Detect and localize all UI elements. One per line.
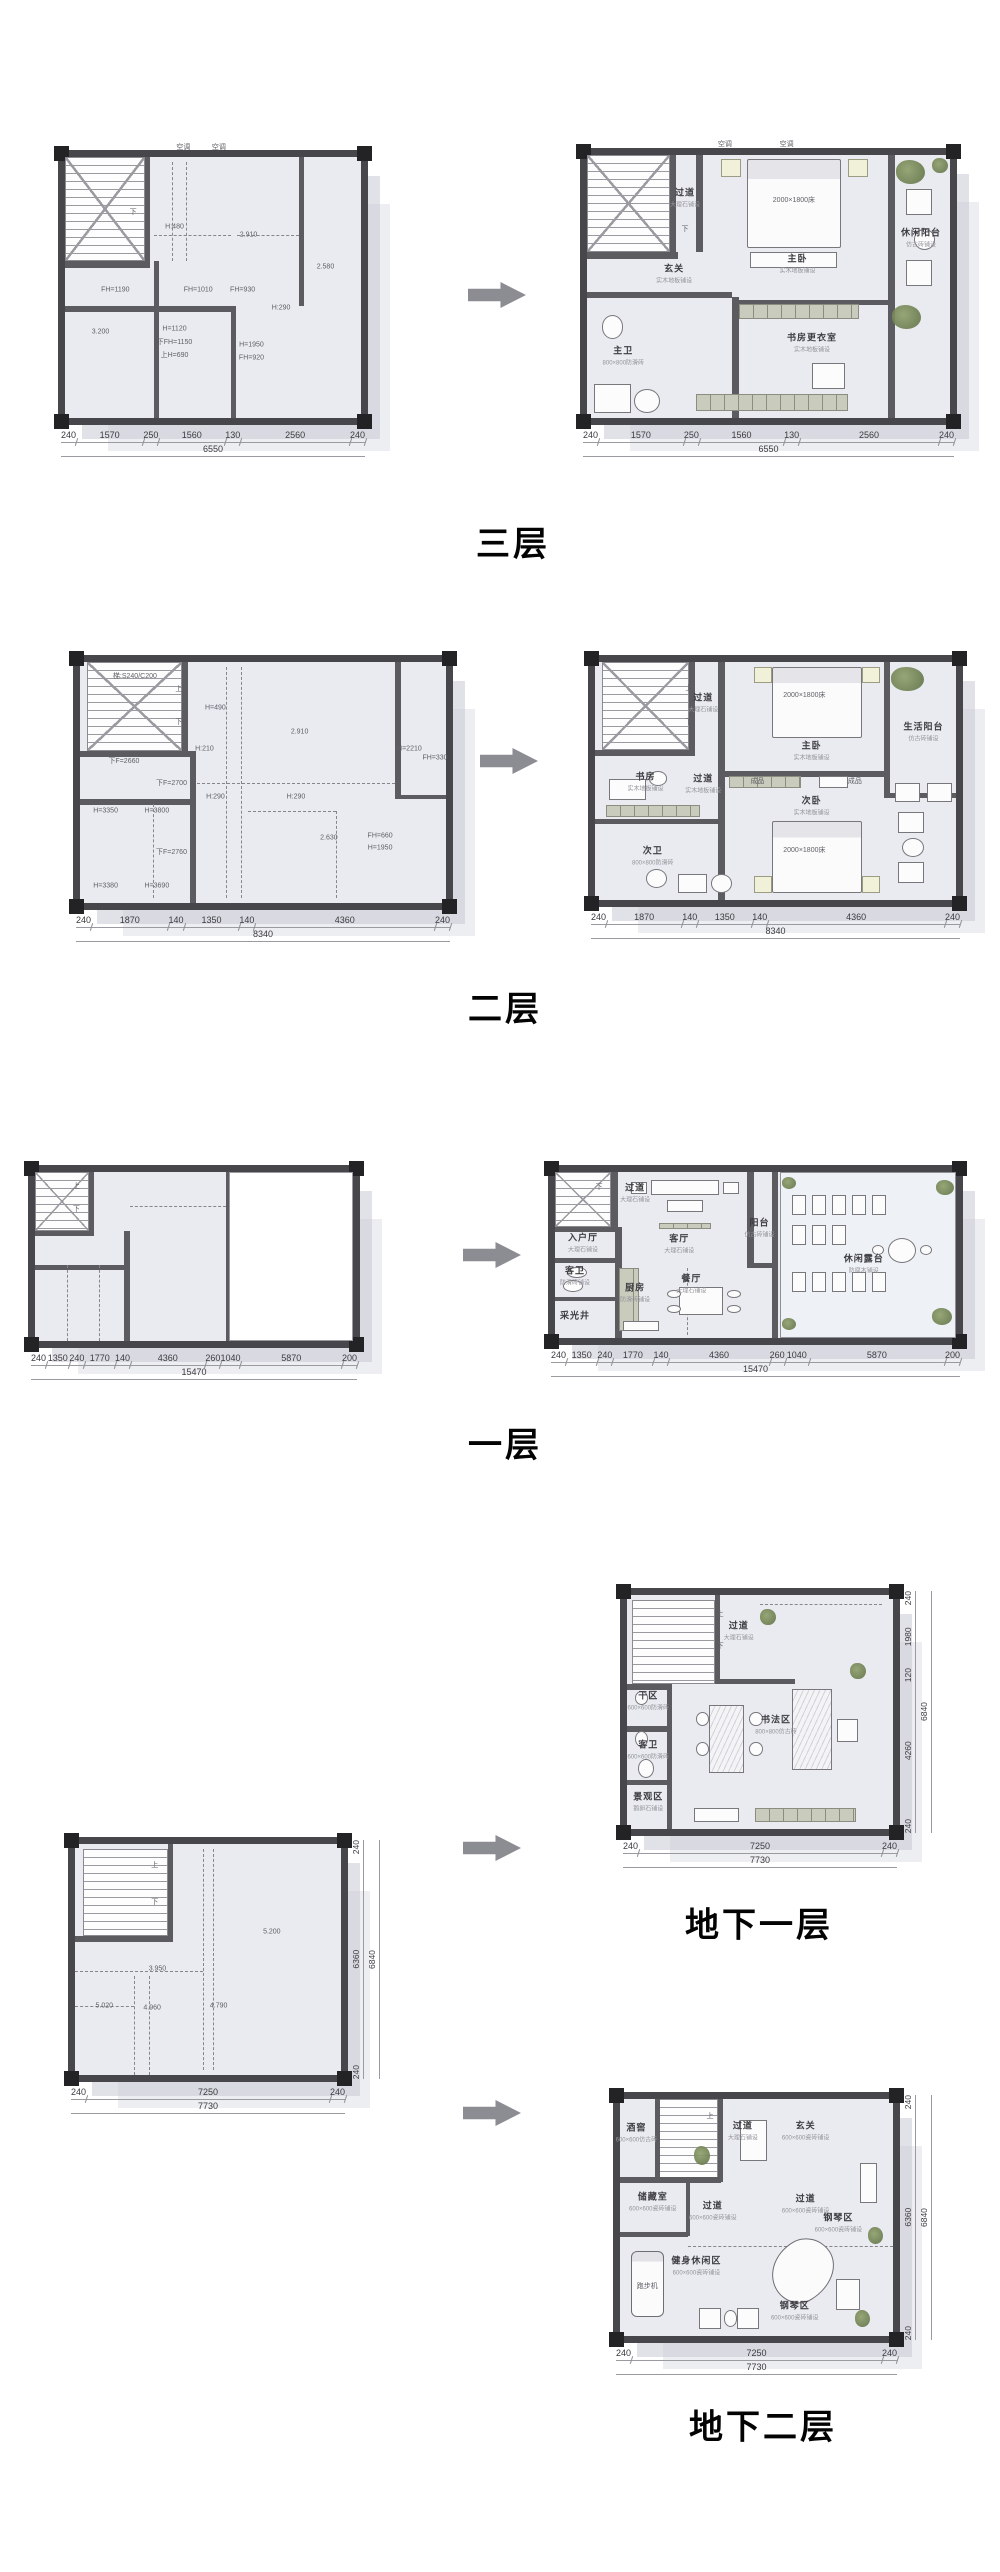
plan-3f-furnished: 过道大理石铺设玄关实木地板铺设主卧实木地板铺设休闲阳台仿古砖铺设主卫800×80… bbox=[580, 148, 957, 425]
wall-pillar bbox=[952, 896, 967, 911]
plan-annotation: 上 bbox=[717, 1609, 724, 1619]
plan-annotation: 3.950 bbox=[149, 1965, 167, 1972]
dimension-value: 5870 bbox=[240, 1353, 341, 1365]
room-finish-note: 大理石铺设 bbox=[724, 1633, 754, 1642]
plan-annotation: 下 bbox=[130, 207, 137, 217]
furniture-rect bbox=[837, 1719, 858, 1742]
room-label: 客卫600×600防滑砖 bbox=[628, 1738, 670, 1761]
room-finish-note: 实木地板铺设 bbox=[656, 276, 692, 285]
dimension-value: 240 bbox=[551, 1350, 566, 1362]
furniture-plant bbox=[782, 1318, 796, 1330]
room-label: 酒窖600×600仿古砖 bbox=[616, 2121, 658, 2144]
wall-pillar bbox=[64, 2071, 79, 2086]
dashed-guide-line bbox=[172, 162, 173, 261]
room-name: 储藏室 bbox=[629, 2189, 677, 2202]
room-finish-note: 600×600瓷砖铺设 bbox=[782, 2132, 830, 2141]
plan-annotation: FH=330 bbox=[422, 755, 447, 762]
room-name: 玄关 bbox=[782, 2118, 830, 2131]
room-name: 景观区 bbox=[633, 1789, 663, 1802]
plan-annotation: 下 bbox=[596, 1182, 603, 1192]
dimension-value: 140 bbox=[115, 1353, 130, 1365]
furniture-round bbox=[646, 869, 668, 888]
dashed-guide-line bbox=[213, 1849, 214, 2071]
dimension-value: 1570 bbox=[76, 430, 143, 442]
room-finish-note: 800×800防滑砖 bbox=[632, 857, 674, 866]
section-label: 地下一层 bbox=[685, 1898, 833, 1947]
wall-pillar bbox=[609, 2332, 624, 2347]
wall-pillar bbox=[946, 414, 961, 429]
furniture-rect bbox=[898, 862, 923, 883]
furniture-rect bbox=[792, 1195, 806, 1215]
dimension-value: 260 bbox=[770, 1350, 785, 1362]
dashed-guide-line bbox=[130, 1206, 225, 1207]
furniture-cab bbox=[696, 394, 848, 411]
plan-annotation: 2000×1800床 bbox=[783, 845, 825, 855]
furniture-rect bbox=[694, 1808, 739, 1822]
dimension-value: 130 bbox=[225, 430, 240, 442]
room-name: 过道 bbox=[728, 2118, 758, 2131]
plan-annotation: H=3380 bbox=[93, 883, 118, 890]
room-label: 过道大理石铺设 bbox=[670, 186, 700, 209]
dimension-value: 240 bbox=[350, 430, 365, 442]
room-name: 客卫 bbox=[628, 1738, 670, 1751]
plan-annotation: H=3350 bbox=[93, 808, 118, 815]
furniture-rect bbox=[651, 1180, 719, 1195]
room-name: 次卧 bbox=[794, 793, 830, 806]
plan-annotation: FH=660 bbox=[368, 832, 393, 839]
dimension-value: 2560 bbox=[799, 430, 939, 442]
room-name: 过道 bbox=[782, 2192, 830, 2205]
room-finish-note: 600×600瓷砖铺设 bbox=[815, 2225, 863, 2234]
transform-arrow-icon bbox=[463, 1242, 521, 1268]
plan-annotation: 梯:S240/C200 bbox=[113, 671, 157, 681]
room-name: 钢琴区 bbox=[815, 2211, 863, 2224]
furniture-rect bbox=[678, 874, 707, 893]
furniture-rect bbox=[699, 2308, 721, 2329]
plan-annotation: FH=1190 bbox=[101, 287, 129, 294]
wall-pillar bbox=[616, 1825, 631, 1840]
dashed-guide-line bbox=[197, 783, 395, 784]
furniture-round bbox=[602, 315, 624, 339]
dimension-value: 1870 bbox=[91, 915, 168, 927]
plan-annotation: H=1950 bbox=[239, 341, 264, 348]
room-name: 健身休闲区 bbox=[671, 2253, 721, 2266]
dimension-segments: 2407250240 bbox=[71, 2087, 345, 2100]
partition-wall bbox=[620, 2232, 688, 2238]
dimension-total: 7730 bbox=[71, 2100, 345, 2114]
room-label: 书法区800×800仿古砖 bbox=[755, 1712, 797, 1735]
dimension-chain: 2401350240177014043602601040587020015470 bbox=[31, 1353, 357, 1380]
plan-annotation: 上H=690 bbox=[161, 350, 189, 360]
plan-annotation: 空调 bbox=[176, 142, 190, 152]
room-label: 过道大理石铺设 bbox=[728, 2118, 758, 2141]
dimension-value: 1040 bbox=[220, 1353, 240, 1365]
room-name: 书房 bbox=[628, 770, 664, 783]
room-name: 客厅 bbox=[664, 1232, 694, 1245]
furniture-plant bbox=[932, 158, 948, 174]
side-dimension-value: 240 bbox=[349, 1840, 363, 1854]
partition-wall bbox=[888, 155, 895, 418]
furniture-ac bbox=[848, 159, 868, 177]
dimension-segments: 240157025015601302560240 bbox=[583, 430, 954, 443]
dimension-value: 250 bbox=[684, 430, 699, 442]
room-label: 厨房防滑砖铺设 bbox=[620, 1280, 650, 1303]
furniture-rect bbox=[832, 1225, 846, 1245]
plan-annotation: H=3690 bbox=[145, 883, 170, 890]
room-label: 客厅大理石铺设 bbox=[664, 1232, 694, 1255]
partition-wall bbox=[89, 1172, 94, 1231]
plan-annotation: 下 bbox=[151, 1897, 158, 1907]
furniture-rect bbox=[836, 2279, 861, 2310]
room-finish-note: 600×600瓷砖铺设 bbox=[689, 2213, 737, 2222]
plan-annotation: FH=1010 bbox=[184, 287, 213, 294]
furniture-rect bbox=[623, 1321, 659, 1331]
room-name: 玄关 bbox=[656, 262, 692, 275]
dimension-value: 240 bbox=[71, 2087, 86, 2099]
side-dimension-chain: 24019801204260240 bbox=[901, 1591, 916, 1833]
dimension-value: 1350 bbox=[697, 912, 752, 924]
partition-wall bbox=[190, 751, 197, 903]
furniture-round bbox=[888, 1238, 916, 1263]
dashed-guide-line bbox=[67, 1265, 68, 1341]
plan-annotation: 空调 bbox=[212, 142, 226, 152]
plan-annotation: 2000×1800床 bbox=[783, 690, 825, 700]
plan-2f-original: 梯:S240/C200上下H=490H:210下F=2660下F=2700H=3… bbox=[73, 655, 453, 910]
dashed-guide-line bbox=[149, 1976, 150, 2075]
furniture-round bbox=[724, 2310, 738, 2327]
furniture-rect bbox=[906, 189, 931, 215]
room-finish-note: 仿古砖铺设 bbox=[901, 239, 941, 248]
furniture-hatch bbox=[709, 1705, 744, 1773]
dimension-total: 7730 bbox=[616, 2361, 897, 2375]
dimension-value: 1560 bbox=[699, 430, 784, 442]
dimension-value: 1040 bbox=[785, 1350, 809, 1362]
partition-wall bbox=[154, 306, 236, 312]
furniture-ac bbox=[721, 159, 741, 177]
room-label: 过道实木地板铺设 bbox=[685, 772, 721, 795]
furniture-rect bbox=[812, 1195, 826, 1215]
dimension-value: 7250 bbox=[86, 2087, 330, 2099]
dimension-value: 140 bbox=[653, 1350, 668, 1362]
dimension-segments: 24013502401770140436026010405870200 bbox=[551, 1350, 960, 1363]
transform-arrow-icon bbox=[463, 2100, 521, 2126]
dimension-value: 7250 bbox=[638, 1841, 882, 1853]
room-name: 过道 bbox=[685, 772, 721, 785]
wall-pillar bbox=[69, 899, 84, 914]
furniture-cab bbox=[606, 805, 700, 817]
dimension-value: 2560 bbox=[240, 430, 350, 442]
plan-annotation: H:480 bbox=[165, 224, 184, 231]
room-label: 书房实木地板铺设 bbox=[628, 770, 664, 793]
furniture-round bbox=[711, 874, 733, 893]
section-label: 地下二层 bbox=[689, 2400, 837, 2449]
dashed-guide-line bbox=[154, 235, 231, 236]
room-label: 钢琴区600×600瓷砖铺设 bbox=[815, 2211, 863, 2234]
partition-wall bbox=[124, 1231, 130, 1341]
partition-wall bbox=[65, 306, 154, 312]
room-label: 过道大理石铺设 bbox=[724, 1619, 754, 1642]
wall-pillar bbox=[952, 651, 967, 666]
dimension-chain: 2401570250156013025602406550 bbox=[61, 430, 365, 457]
dashed-guide-line bbox=[134, 1976, 135, 2075]
room-label: 主卧实木地板铺设 bbox=[780, 251, 816, 274]
furniture-round bbox=[696, 1742, 709, 1756]
partition-wall bbox=[231, 306, 236, 418]
dimension-value: 240 bbox=[591, 912, 606, 924]
furniture-rect bbox=[906, 260, 931, 286]
room-finish-note: 防滑砖铺设 bbox=[560, 1277, 590, 1286]
dimension-chain: 2401870140135014043602408340 bbox=[76, 915, 450, 942]
room-label: 主卧实木地板铺设 bbox=[794, 739, 830, 762]
plan-b1-furnished: 过道大理石铺设干区600×600防滑砖客卫600×600防滑砖景观区鹅卵石铺设书… bbox=[620, 1588, 900, 1836]
room-finish-note: 600×600防滑砖 bbox=[628, 1752, 670, 1761]
section-label: 三层 bbox=[476, 517, 550, 566]
furniture-cab bbox=[659, 1223, 711, 1229]
dimension-segments: 24013502401770140436026010405870200 bbox=[31, 1353, 357, 1366]
dimension-value: 4360 bbox=[254, 915, 435, 927]
furniture-plant bbox=[932, 1308, 952, 1325]
furniture-cab bbox=[755, 1808, 856, 1822]
partition-wall bbox=[715, 1679, 795, 1684]
plan-annotation: 跑步机 bbox=[637, 2281, 658, 2291]
dimension-segments: 2407250240 bbox=[616, 2348, 897, 2361]
furniture-round bbox=[749, 1742, 762, 1756]
dimension-value: 240 bbox=[939, 430, 954, 442]
plan-annotation: 下 bbox=[73, 1204, 80, 1214]
partition-wall bbox=[75, 1936, 173, 1942]
dimension-value: 1870 bbox=[606, 912, 682, 924]
room-finish-note: 600×600瓷砖铺设 bbox=[629, 2203, 677, 2212]
furniture-rect bbox=[819, 776, 848, 788]
plan-annotation: 4.960 bbox=[143, 2005, 161, 2012]
furniture-rect bbox=[895, 783, 920, 802]
furniture-round bbox=[902, 838, 924, 857]
furniture-bed bbox=[772, 667, 862, 738]
plan-annotation: FH=920 bbox=[239, 354, 264, 361]
dashed-guide-line bbox=[760, 1604, 882, 1605]
side-dimension-total: 6840 bbox=[917, 2095, 931, 2340]
room-label: 过道600×600瓷砖铺设 bbox=[689, 2199, 737, 2222]
wall-pillar bbox=[24, 1337, 39, 1352]
furniture-plant bbox=[891, 667, 923, 691]
dimension-value: 240 bbox=[583, 430, 598, 442]
plan-1f-original: 上下24013502401770140436026010405870200154… bbox=[28, 1165, 360, 1348]
room-name: 过道 bbox=[620, 1180, 650, 1193]
room-name: 钢琴区 bbox=[771, 2298, 819, 2311]
room-finish-note: 实木地板铺设 bbox=[794, 807, 830, 816]
dimension-chain: 24072502407730 bbox=[71, 2087, 345, 2114]
furniture-rect bbox=[667, 1200, 703, 1212]
wall-pillar bbox=[584, 896, 599, 911]
dimension-value: 1350 bbox=[566, 1350, 597, 1362]
furniture-bed bbox=[772, 821, 862, 892]
dimension-total: 7730 bbox=[623, 1854, 897, 1868]
room-finish-note: 800×800防滑砖 bbox=[603, 357, 645, 366]
plan-annotation: H:290 bbox=[287, 793, 306, 800]
plan-annotation: H=2210 bbox=[397, 745, 422, 752]
dimension-segments: 240187014013501404360240 bbox=[76, 915, 450, 928]
dimension-total: 8340 bbox=[76, 928, 450, 942]
room-finish-note: 600×600瓷砖铺设 bbox=[771, 2312, 819, 2321]
plan-annotation: H=1950 bbox=[368, 844, 393, 851]
furniture-ac bbox=[754, 876, 772, 893]
room-label: 客卫防滑砖铺设 bbox=[560, 1263, 590, 1286]
room-name: 生活阳台 bbox=[903, 720, 943, 733]
furniture-cab bbox=[739, 304, 859, 320]
transform-arrow-icon bbox=[468, 282, 526, 308]
furniture-rect bbox=[852, 1195, 866, 1215]
wall-pillar bbox=[442, 651, 457, 666]
plan-annotation: H=490 bbox=[205, 704, 226, 711]
partition-wall bbox=[772, 1172, 778, 1338]
room-label: 生活阳台仿古砖铺设 bbox=[903, 720, 943, 743]
plan-annotation: 2.910 bbox=[240, 232, 258, 239]
room-label: 玄关600×600瓷砖铺设 bbox=[782, 2118, 830, 2141]
room-label: 书房更衣室实木地板铺设 bbox=[787, 330, 837, 353]
side-dimension-chain: 2406360240 bbox=[349, 1840, 364, 2079]
furniture-rect bbox=[812, 1272, 826, 1292]
room-finish-note: 大理石铺设 bbox=[688, 705, 718, 714]
side-dimension-value: 240 bbox=[901, 2095, 915, 2109]
plan-2f-furnished: 过道大理石铺设书房实木地板铺设过道实木地板铺设主卧实木地板铺设生活阳台仿古砖铺设… bbox=[588, 655, 963, 907]
room-finish-note: 鹅卵石铺设 bbox=[633, 1803, 663, 1812]
plan-annotation: 下 bbox=[685, 717, 692, 727]
room-finish-note: 实木地板铺设 bbox=[794, 753, 830, 762]
room-finish-note: 防滑砖铺设 bbox=[620, 1294, 650, 1303]
partition-wall bbox=[395, 795, 446, 800]
room-name: 客卫 bbox=[560, 1263, 590, 1276]
dimension-value: 240 bbox=[616, 2348, 631, 2360]
dimension-value: 200 bbox=[945, 1350, 960, 1362]
furniture-rect bbox=[723, 1182, 739, 1194]
room-label: 阳台仿古砖铺设 bbox=[744, 1215, 774, 1238]
plan-annotation: H:210 bbox=[195, 745, 214, 752]
dimension-value: 240 bbox=[623, 1841, 638, 1853]
dimension-total: 6550 bbox=[583, 443, 954, 457]
plan-annotation: 成品 bbox=[750, 776, 764, 786]
room-label: 休闲露台防腐木铺设 bbox=[844, 1252, 884, 1275]
wall-pillar bbox=[64, 1833, 79, 1848]
room-name: 酒窖 bbox=[616, 2121, 658, 2134]
dashed-guide-line bbox=[203, 1849, 204, 2071]
dimension-value: 240 bbox=[435, 915, 450, 927]
furniture-plant bbox=[868, 2227, 883, 2244]
dimension-value: 4360 bbox=[767, 912, 945, 924]
plan-annotation: 下 bbox=[682, 224, 689, 234]
transform-arrow-icon bbox=[463, 1835, 521, 1861]
plan-annotation: 空调 bbox=[718, 139, 732, 149]
plan-annotation: 2.630 bbox=[320, 834, 338, 841]
plan-b2-furnished: 酒窖600×600仿古砖过道大理石铺设玄关600×600瓷砖铺设储藏室600×6… bbox=[613, 2092, 900, 2343]
furniture-ac bbox=[862, 667, 880, 684]
room-finish-note: 600×600仿古砖 bbox=[616, 2135, 658, 2144]
room-name: 过道 bbox=[688, 691, 718, 704]
partition-wall bbox=[884, 662, 890, 798]
dimension-value: 240 bbox=[61, 430, 76, 442]
plan-annotation: 上 bbox=[707, 2111, 714, 2121]
dimension-value: 250 bbox=[143, 430, 158, 442]
dimension-chain: 2401870140135014043602408340 bbox=[591, 912, 960, 939]
wall-pillar bbox=[576, 414, 591, 429]
staircase bbox=[587, 155, 670, 252]
staircase bbox=[602, 662, 689, 750]
side-dimension-value: 240 bbox=[349, 2065, 363, 2079]
side-dimension-total-chain: 6840 bbox=[917, 1591, 932, 1833]
dimension-value: 200 bbox=[342, 1353, 357, 1365]
dimension-value: 240 bbox=[76, 915, 91, 927]
furniture-plant bbox=[850, 1663, 866, 1679]
partition-wall bbox=[595, 750, 695, 756]
room-name: 过道 bbox=[670, 186, 700, 199]
floorplan-poster: 三层空调空调下H:4802.9102.580FH=1190FH=1010FH=9… bbox=[0, 0, 1000, 2572]
dimension-value: 1560 bbox=[158, 430, 225, 442]
side-dimension-total-chain: 6840 bbox=[365, 1840, 380, 2079]
dimension-value: 140 bbox=[752, 912, 767, 924]
furniture-rect bbox=[792, 1225, 806, 1245]
dimension-value: 5870 bbox=[809, 1350, 945, 1362]
dimension-value: 240 bbox=[330, 2087, 345, 2099]
partition-wall bbox=[555, 1297, 615, 1302]
room-finish-note: 防腐木铺设 bbox=[844, 1266, 884, 1275]
room-finish-note: 实木地板铺设 bbox=[780, 265, 816, 274]
dimension-value: 140 bbox=[239, 915, 254, 927]
dashed-guide-line bbox=[75, 1971, 203, 1972]
furniture-open bbox=[229, 1172, 353, 1341]
dimension-value: 1350 bbox=[184, 915, 240, 927]
room-name: 休闲露台 bbox=[844, 1252, 884, 1265]
room-label: 过道大理石铺设 bbox=[620, 1180, 650, 1203]
plan-annotation: H:290 bbox=[272, 305, 291, 312]
partition-wall bbox=[395, 662, 402, 795]
dimension-value: 1570 bbox=[598, 430, 684, 442]
room-finish-note: 仿古砖铺设 bbox=[744, 1229, 774, 1238]
side-dimension-total: 6840 bbox=[917, 1591, 931, 1833]
dimension-chain: 24072502407730 bbox=[616, 2348, 897, 2375]
room-label: 采光井 bbox=[560, 1308, 590, 1321]
dimension-total: 15470 bbox=[31, 1366, 357, 1380]
furniture-ac bbox=[862, 876, 880, 893]
section-label: 二层 bbox=[468, 982, 542, 1031]
room-name: 过道 bbox=[724, 1619, 754, 1632]
side-dimension-chain: 2406360240 bbox=[901, 2095, 916, 2340]
room-finish-note: 实木地板铺设 bbox=[685, 786, 721, 795]
room-label: 入户厅大理石铺设 bbox=[568, 1230, 598, 1253]
room-finish-note: 大理石铺设 bbox=[728, 2132, 758, 2141]
furniture-rect bbox=[594, 384, 630, 413]
dimension-chain: 2401570250156013025602406550 bbox=[583, 430, 954, 457]
room-name: 主卫 bbox=[603, 343, 645, 356]
plan-b1-original: 上下5.2003.9505.0204.9604.7902407250240773… bbox=[68, 1837, 348, 2082]
wall-pillar bbox=[357, 146, 372, 161]
plan-annotation: 5.200 bbox=[263, 1928, 281, 1935]
room-finish-note: 大理石铺设 bbox=[670, 200, 700, 209]
furniture-plant bbox=[936, 1180, 954, 1195]
transform-arrow-icon bbox=[480, 748, 538, 774]
plan-annotation: FH=930 bbox=[230, 287, 255, 294]
side-dimension-value: 240 bbox=[901, 2326, 915, 2340]
room-finish-note: 大理石铺设 bbox=[620, 1194, 650, 1203]
room-name: 干区 bbox=[628, 1689, 670, 1702]
partition-wall bbox=[35, 1231, 94, 1236]
dimension-value: 240 bbox=[31, 1353, 46, 1365]
partition-wall bbox=[627, 1726, 667, 1732]
room-name: 厨房 bbox=[620, 1280, 650, 1293]
wall-pillar bbox=[544, 1334, 559, 1349]
dimension-segments: 240157025015601302560240 bbox=[61, 430, 365, 443]
furniture-hatch bbox=[792, 1689, 832, 1771]
furniture-plant bbox=[892, 305, 921, 329]
wall-pillar bbox=[584, 651, 599, 666]
